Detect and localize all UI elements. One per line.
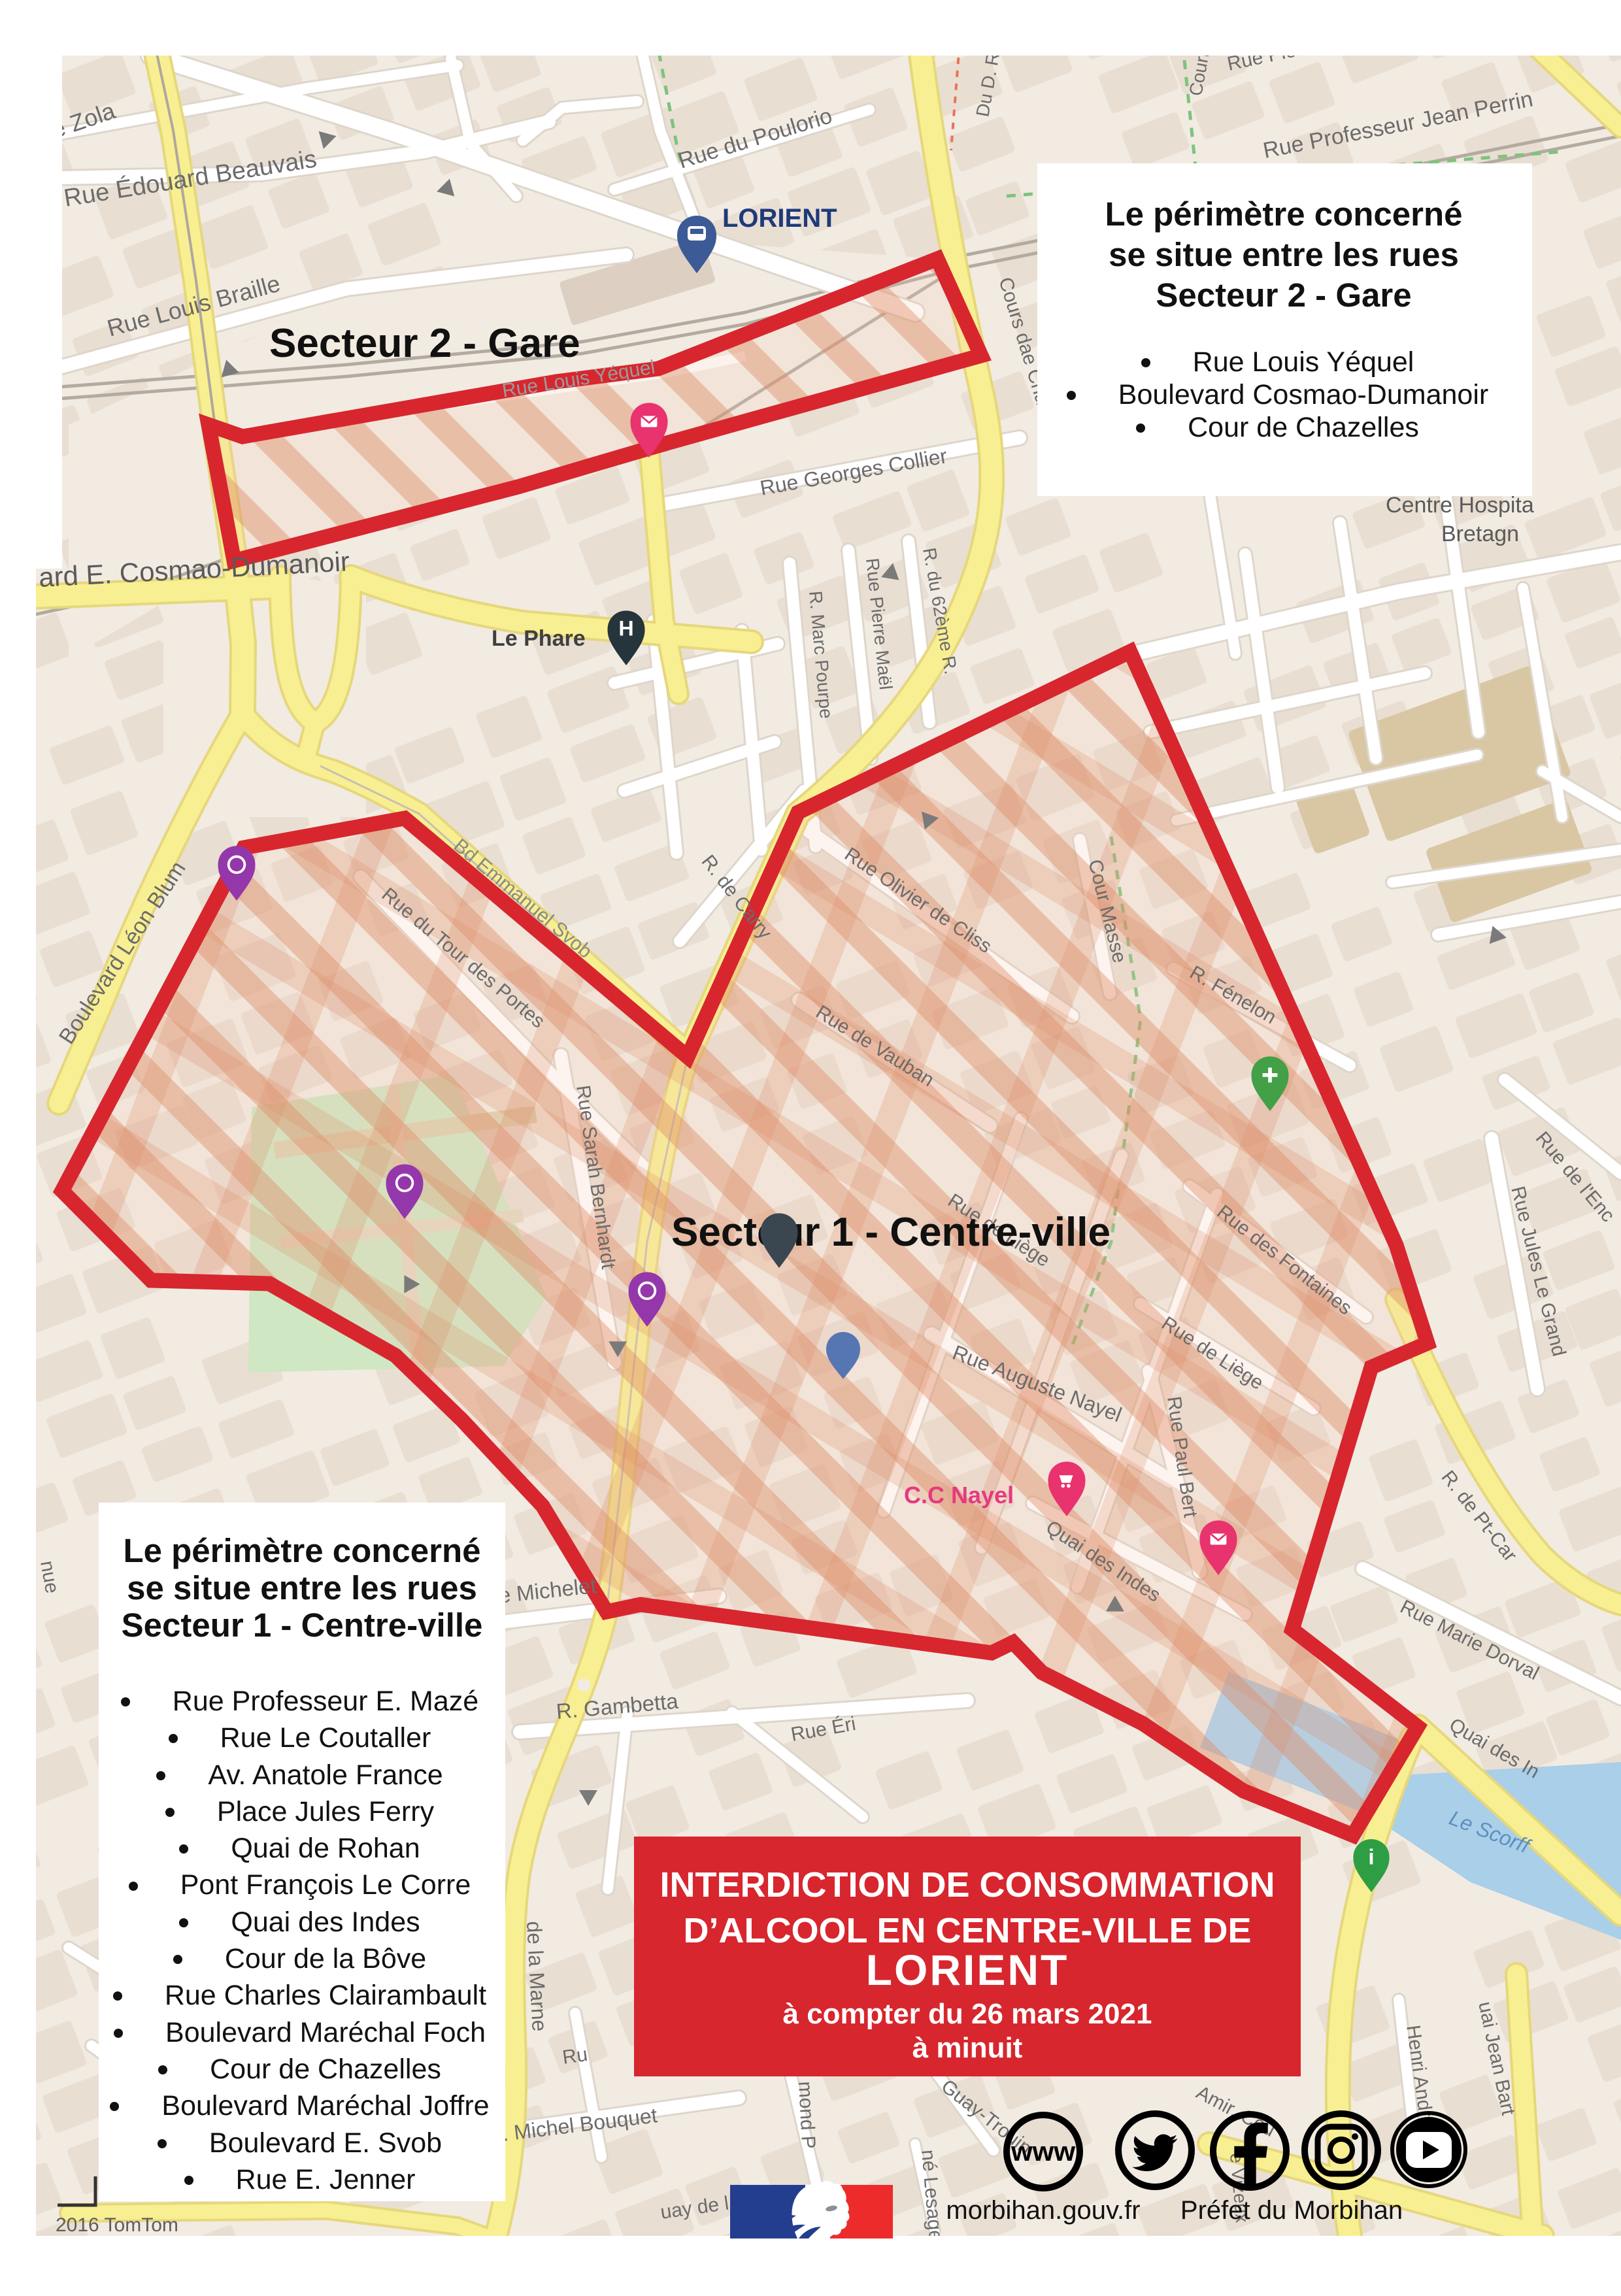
svg-text:morbihan.gouv.fr: morbihan.gouv.fr	[946, 2196, 1140, 2225]
svg-text:à compter du 26 mars 2021: à compter du 26 mars 2021	[783, 1998, 1152, 2030]
svg-text:C.C Nayel: C.C Nayel	[904, 1482, 1014, 1508]
svg-text:Secteur 1 - Centre-ville: Secteur 1 - Centre-ville	[122, 1606, 483, 1644]
svg-text:Le Phare: Le Phare	[492, 626, 586, 651]
svg-text:Place Jules Ferry: Place Jules Ferry	[217, 1796, 435, 1827]
svg-text:INTERDICTION DE CONSOMMATION: INTERDICTION DE CONSOMMATION	[660, 1865, 1275, 1905]
svg-text:mond P: mond P	[794, 2081, 819, 2150]
svg-text:Rue Professeur E. Mazé: Rue Professeur E. Mazé	[173, 1686, 478, 1717]
svg-text:Le périmètre concerné: Le périmètre concerné	[1105, 195, 1462, 233]
svg-text:Rue Louis Yéquel: Rue Louis Yéquel	[1193, 346, 1414, 378]
svg-text:Cour de Chazelles: Cour de Chazelles	[210, 2054, 441, 2085]
svg-text:Av. Anatole France: Av. Anatole France	[208, 1759, 443, 1791]
svg-text:Secteur 2 - Gare: Secteur 2 - Gare	[269, 321, 580, 366]
svg-text:www: www	[1011, 2136, 1075, 2167]
svg-text:LORIENT: LORIENT	[722, 204, 837, 233]
svg-text:Bretagn: Bretagn	[1441, 522, 1519, 546]
svg-text:Boulevard E. Svob: Boulevard E. Svob	[209, 2127, 442, 2159]
svg-text:Quai des Indes: Quai des Indes	[231, 1906, 420, 1938]
svg-text:Rue Charles Clairambault: Rue Charles Clairambault	[165, 1980, 486, 2011]
svg-text:H: H	[618, 616, 633, 640]
svg-text:Boulevard Maréchal Joffre: Boulevard Maréchal Joffre	[161, 2090, 489, 2121]
svg-text:Cour de la Bôve: Cour de la Bôve	[225, 1943, 426, 1974]
svg-text:Quai de Rohan: Quai de Rohan	[231, 1833, 420, 1864]
svg-text:Pont François Le Corre: Pont François Le Corre	[180, 1869, 471, 1901]
svg-text:Secteur 1 - Centre-ville: Secteur 1 - Centre-ville	[671, 1210, 1111, 1255]
svg-text:Rue E. Jenner: Rue E. Jenner	[236, 2164, 416, 2195]
svg-text:Le périmètre concerné: Le périmètre concerné	[123, 1532, 480, 1569]
svg-text:Boulevard Maréchal Foch: Boulevard Maréchal Foch	[165, 2017, 486, 2048]
svg-text:Préfet du Morbihan: Préfet du Morbihan	[1180, 2196, 1403, 2225]
svg-text:Ru: Ru	[561, 2044, 589, 2069]
svg-text:D’ALCOOL EN CENTRE-VILLE DE: D’ALCOOL EN CENTRE-VILLE DE	[683, 1911, 1251, 1950]
svg-text:à minuit: à minuit	[912, 2032, 1023, 2064]
svg-text:Rue Le Coutaller: Rue Le Coutaller	[220, 1722, 431, 1754]
svg-text:Cour de Chazelles: Cour de Chazelles	[1188, 412, 1419, 443]
svg-text:i: i	[1368, 1846, 1374, 1870]
svg-text:se situe entre les rues: se situe entre les rues	[127, 1569, 477, 1606]
svg-text:Centre Hospita: Centre Hospita	[1386, 493, 1534, 518]
svg-text:Boulevard Cosmao-Dumanoir: Boulevard Cosmao-Dumanoir	[1118, 379, 1488, 410]
svg-text:LORIENT: LORIENT	[866, 1946, 1069, 1994]
svg-text:2016 TomTom: 2016 TomTom	[56, 2214, 178, 2236]
svg-text:se situe entre les rues: se situe entre les rues	[1109, 236, 1459, 273]
svg-text:Secteur 2 - Gare: Secteur 2 - Gare	[1156, 276, 1411, 314]
